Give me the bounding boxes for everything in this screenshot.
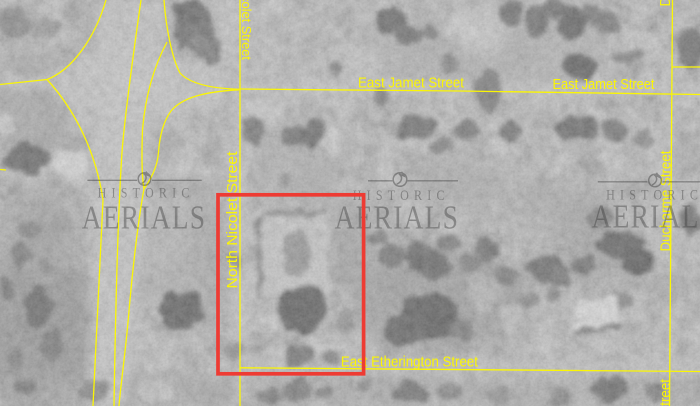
- svg-text:AERIALS: AERIALS: [592, 199, 700, 236]
- svg-text:East Jamet Street: East Jamet Street: [358, 76, 464, 92]
- svg-text:Ducharme Street: Ducharme Street: [658, 379, 674, 406]
- svg-text:North Nicolet Street: North Nicolet Street: [225, 152, 241, 289]
- svg-text:East Etherington Street: East Etherington Street: [341, 355, 478, 371]
- svg-text:AERIALS: AERIALS: [335, 200, 460, 237]
- svg-text:AERIALS: AERIALS: [82, 200, 207, 237]
- svg-text:Ducharme Street: Ducharme Street: [658, 0, 674, 7]
- svg-text:North Nicolet Street: North Nicolet Street: [239, 0, 253, 61]
- svg-text:East Jamet Street: East Jamet Street: [553, 77, 655, 93]
